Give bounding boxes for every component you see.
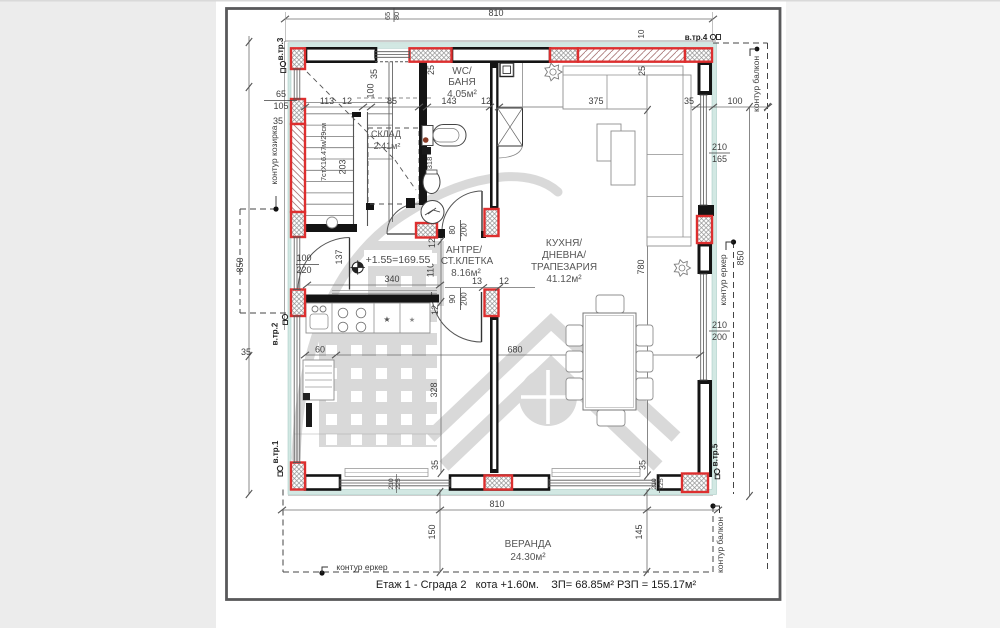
svg-text:12: 12 [427,238,437,248]
svg-text:210: 210 [712,142,727,152]
svg-text:113: 113 [320,96,334,106]
svg-text:12: 12 [342,96,352,106]
svg-text:+1.55=169.55: +1.55=169.55 [366,254,431,266]
svg-text:680: 680 [507,345,522,355]
svg-text:100: 100 [366,83,376,98]
svg-text:35: 35 [241,347,251,357]
svg-text:100: 100 [296,253,311,263]
svg-text:65: 65 [383,12,392,20]
svg-text:80: 80 [392,12,401,20]
svg-text:контур балкон: контур балкон [751,56,761,112]
svg-text:225: 225 [658,478,665,490]
svg-text:в.тр.4: в.тр.4 [685,33,708,42]
svg-text:10: 10 [637,29,646,38]
svg-text:★: ★ [409,316,415,324]
svg-text:25: 25 [637,66,647,76]
svg-text:12: 12 [481,96,491,106]
svg-text:в.тр.3: в.тр.3 [276,37,285,60]
svg-text:контур балкон: контур балкон [715,517,725,573]
svg-text:в.тр.2: в.тр.2 [271,322,280,345]
svg-text:СКЛАД: СКЛАД [371,129,401,139]
svg-text:200: 200 [460,223,469,237]
svg-text:375: 375 [588,96,603,106]
svg-text:Етаж 1 - Сграда 2 кота +1.60: Етаж 1 - Сграда 2 кота +1.60м. ЗП= 68.85… [376,579,697,591]
svg-text:35: 35 [638,460,648,470]
svg-text:35: 35 [273,116,283,126]
svg-text:65: 65 [276,89,286,99]
svg-text:41.12м²: 41.12м² [546,274,582,285]
svg-text:165: 165 [712,154,727,164]
svg-text:225: 225 [395,478,402,490]
svg-text:★: ★ [383,315,390,324]
svg-text:90: 90 [448,294,457,303]
svg-text:810: 810 [489,499,504,509]
svg-text:4.05м²: 4.05м² [447,89,477,100]
svg-text:контур еркер: контур еркер [336,562,387,572]
svg-text:7стХ16.47м/29см: 7стХ16.47м/29см [319,123,328,181]
svg-text:в.тр.1: в.тр.1 [271,440,280,463]
svg-text:145: 145 [634,524,644,539]
svg-text:35: 35 [684,96,694,106]
svg-text:WC/: WC/ [452,66,472,77]
svg-text:2.41м²: 2.41м² [374,141,401,151]
svg-text:210: 210 [651,478,658,490]
svg-text:АНТРЕ/: АНТРЕ/ [446,245,482,256]
svg-text:ТРАПЕЗАРИЯ: ТРАПЕЗАРИЯ [531,262,597,273]
svg-text:850: 850 [235,257,245,272]
svg-text:в.тр.5: в.тр.5 [711,443,720,466]
svg-text:контур козирка: контур козирка [269,125,279,184]
svg-text:35: 35 [430,460,440,470]
svg-text:340: 340 [384,274,399,284]
svg-text:СТ.КЛЕТКА: СТ.КЛЕТКА [441,256,494,267]
svg-text:220: 220 [296,265,311,275]
svg-text:60: 60 [315,345,325,355]
svg-text:210: 210 [712,320,727,330]
svg-text:85: 85 [387,96,397,106]
svg-text:105: 105 [273,101,288,111]
svg-text:12: 12 [499,276,509,286]
svg-text:328: 328 [429,382,439,397]
svg-text:780: 780 [636,259,646,274]
svg-text:100: 100 [727,96,742,106]
svg-text:150: 150 [427,524,437,539]
svg-text:12: 12 [430,305,440,315]
svg-text:200: 200 [460,292,469,306]
svg-text:35: 35 [369,69,379,79]
svg-text:810: 810 [488,8,503,18]
svg-text:25: 25 [426,65,436,75]
svg-text:850: 850 [736,250,746,265]
svg-text:318: 318 [425,157,434,170]
svg-text:БАНЯ: БАНЯ [448,77,475,88]
svg-text:8.16м²: 8.16м² [451,268,481,279]
svg-text:ДНЕВНА/: ДНЕВНА/ [542,250,586,261]
svg-text:КУХНЯ/: КУХНЯ/ [546,238,582,249]
svg-text:200: 200 [712,332,727,342]
svg-text:ВЕРАНДА: ВЕРАНДА [505,539,552,550]
svg-text:24.30м²: 24.30м² [510,552,546,563]
svg-text:203: 203 [338,159,348,174]
svg-text:137: 137 [334,249,344,264]
svg-text:210: 210 [388,478,395,490]
svg-text:контур еркер: контур еркер [718,254,728,305]
svg-text:80: 80 [448,225,457,234]
